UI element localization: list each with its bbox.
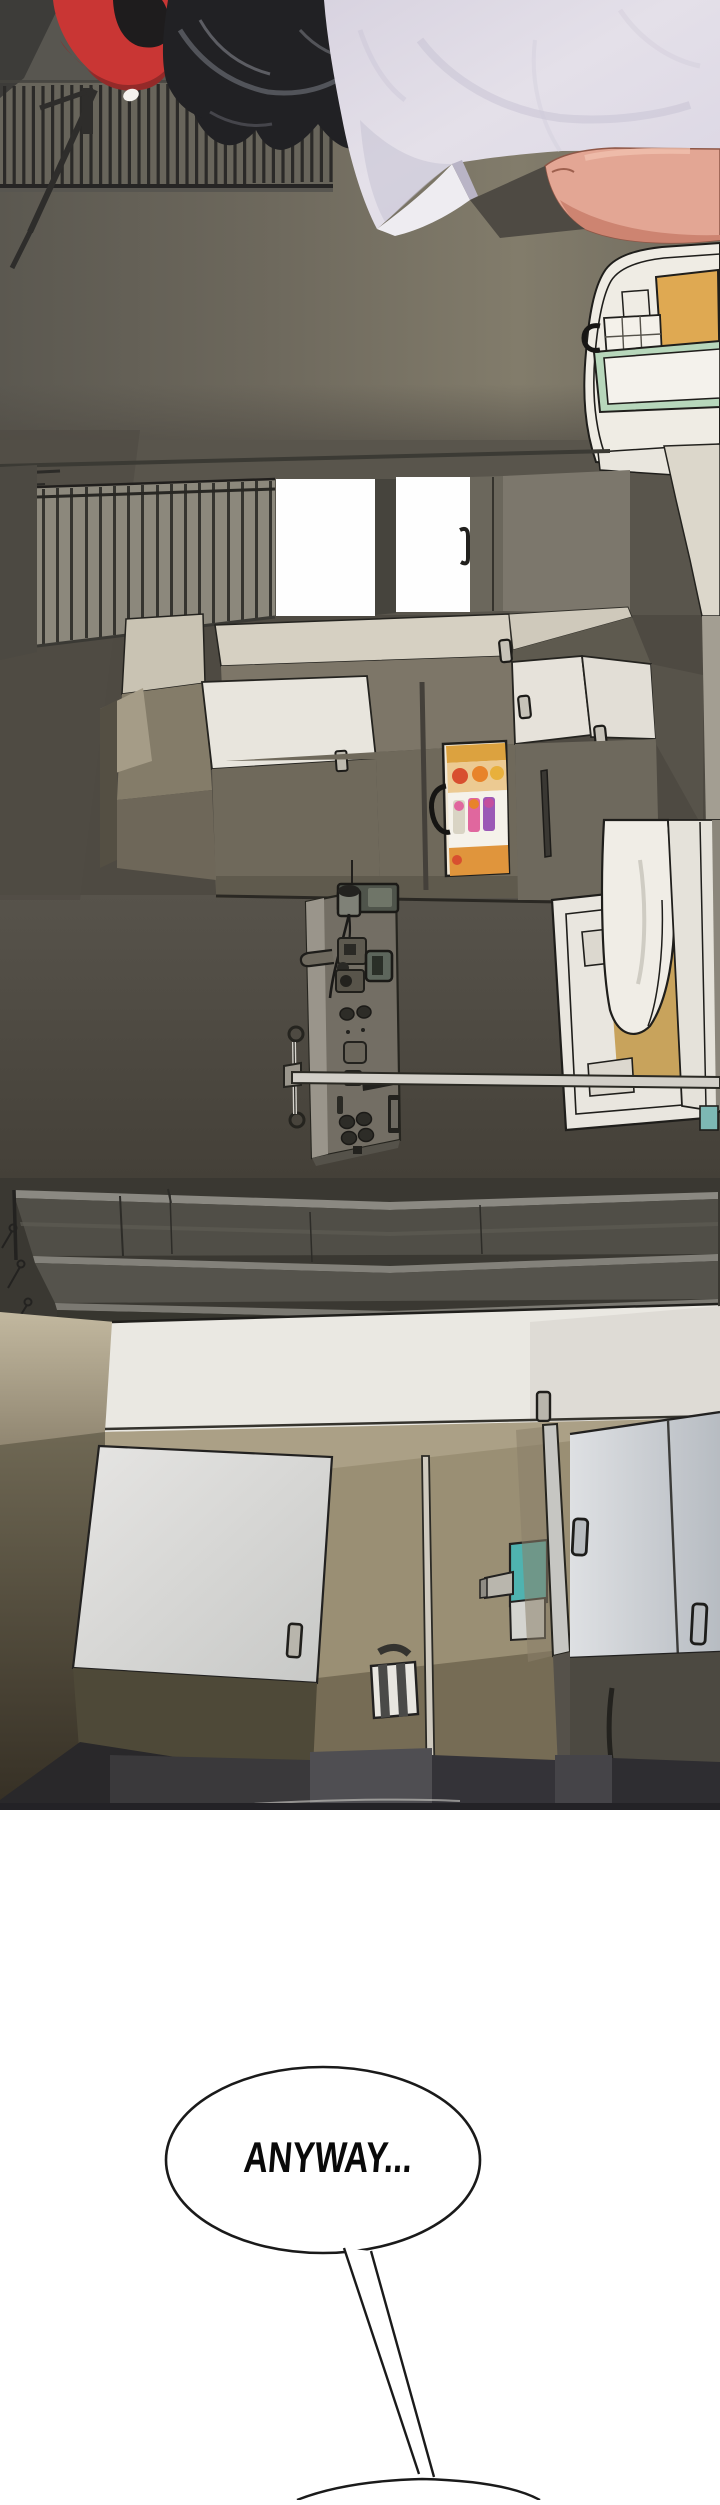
svg-text:ANYWAY...: ANYWAY... (242, 2134, 414, 2182)
